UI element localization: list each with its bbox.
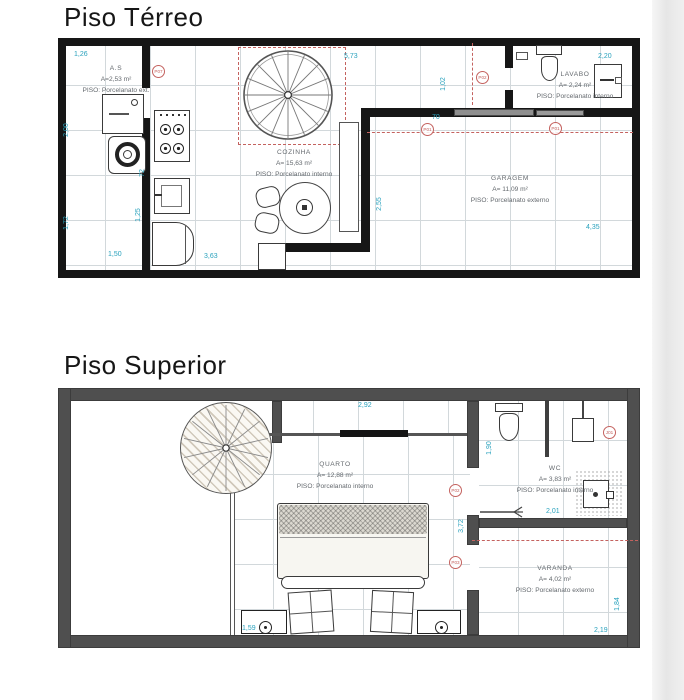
wall-quarto-right-c [467,590,479,635]
kitchen-counter [339,122,359,232]
wall-wc-bottom [479,518,627,528]
wall-kitchen-garage-h [286,243,370,252]
wall-left [58,388,71,648]
dim-label: 72 [139,169,147,177]
dim-label: 1,84 [614,597,622,611]
upper-floor-plan: QUARTO A= 12,88 m² PISO: Porcelanato int… [58,388,640,648]
bed-bench [281,576,425,589]
dim-label: 2,01 [546,508,560,516]
spiral-staircase-spokes [180,402,272,494]
wall-left [58,38,66,278]
dim-label: 1,02 [440,77,448,91]
window-tag: J01 [603,426,616,439]
window-bar-quarto [340,430,408,437]
dim-label: 1,25 [135,208,143,222]
stove-symbol [154,110,190,162]
upper-floor-title: Piso Superior [64,350,227,381]
dim-label: 1,90 [486,441,494,455]
room-label-as: A.S A=2,53 m² PISO: Porcelanato ext. [82,64,149,97]
dim-label: 3,63 [204,253,218,261]
wall-right [627,388,640,648]
dim-label: 5,73 [344,53,358,61]
shower-drain-box [572,418,594,442]
wall-kitchen-garage-v [361,108,370,248]
dim-label: 2,00 [63,123,71,137]
bed-symbol [277,503,429,579]
spiral-staircase-symbol [242,49,334,141]
dim-label: 2,55 [376,197,384,211]
dim-label: 70 [432,114,440,122]
dim-label: 2,20 [598,53,612,61]
kitchen-sink-symbol [154,178,190,214]
wall-right [632,38,640,278]
door-tag: P02 [449,484,462,497]
dim-label: 2,92 [358,402,372,410]
dim-label: 2,19 [594,627,608,635]
door-tag: P01 [421,123,434,136]
varanda-limit-line [472,540,638,541]
wall-quarto-right-a [467,401,479,468]
washing-machine-symbol [102,94,144,134]
wall-wc-divider [545,401,549,457]
wall-lavabo-lower [505,90,513,108]
room-label-wc: WC A= 3,83 m² PISO: Porcelanato interno [517,464,594,497]
door-tag: P07 [152,65,165,78]
toilet-tank [536,45,562,55]
toilet-bowl [499,413,519,441]
dim-label: 4,35 [586,224,600,232]
dim-label: 1,50 [108,251,122,259]
wall-top [58,388,640,401]
stove-knobs [158,113,186,117]
dim-label: 3,72 [458,519,466,533]
fridge-symbol [152,222,194,266]
room-label-garagem: GARAGEM A= 11,09 m² PISO: Porcelanato ex… [471,174,549,207]
wall-step-niche [258,243,286,270]
garage-gate-right [536,110,584,116]
room-label-cozinha: COZINHA A= 15,63 m² PISO: Porcelanato in… [256,148,333,181]
toilet-tank [495,403,523,412]
wall-bottom [58,635,640,648]
wall-stair-stub [272,401,282,443]
screenshot-edge-strip [652,0,684,700]
room-label-varanda: VARANDA A= 4,02 m² PISO: Porcelanato ext… [516,564,594,597]
room-label-lavabo: LAVABO A= 2,24 m² PISO: Porcelanato inte… [537,70,614,103]
bed-headboard-hatch [279,505,427,534]
garage-limit-line [367,132,633,133]
ground-floor-plan: A.S A=2,53 m² PISO: Porcelanato ext. COZ… [58,38,640,278]
wall-lavabo-upper [505,38,513,68]
shower-arm-icon [480,506,524,518]
ground-floor-title: Piso Térreo [64,2,203,33]
dim-label: 1,59 [242,625,256,633]
dining-table-symbol [279,182,331,234]
door-tag: P02 [476,71,489,84]
lamp-symbol [435,621,448,634]
lamp-symbol [259,621,272,634]
setback-line [472,43,473,105]
ottoman-symbol [370,590,414,634]
dim-label: 1,72 [63,216,71,230]
door-tag: P03 [449,556,462,569]
dim-label: 1,26 [74,51,88,59]
room-label-quarto: QUARTO A= 12,88 m² PISO: Porcelanato int… [297,460,374,493]
ottoman-symbol [288,590,335,635]
lavabo-faucet [516,52,528,60]
garage-gate-left [454,109,534,116]
door-tag: P01 [549,122,562,135]
